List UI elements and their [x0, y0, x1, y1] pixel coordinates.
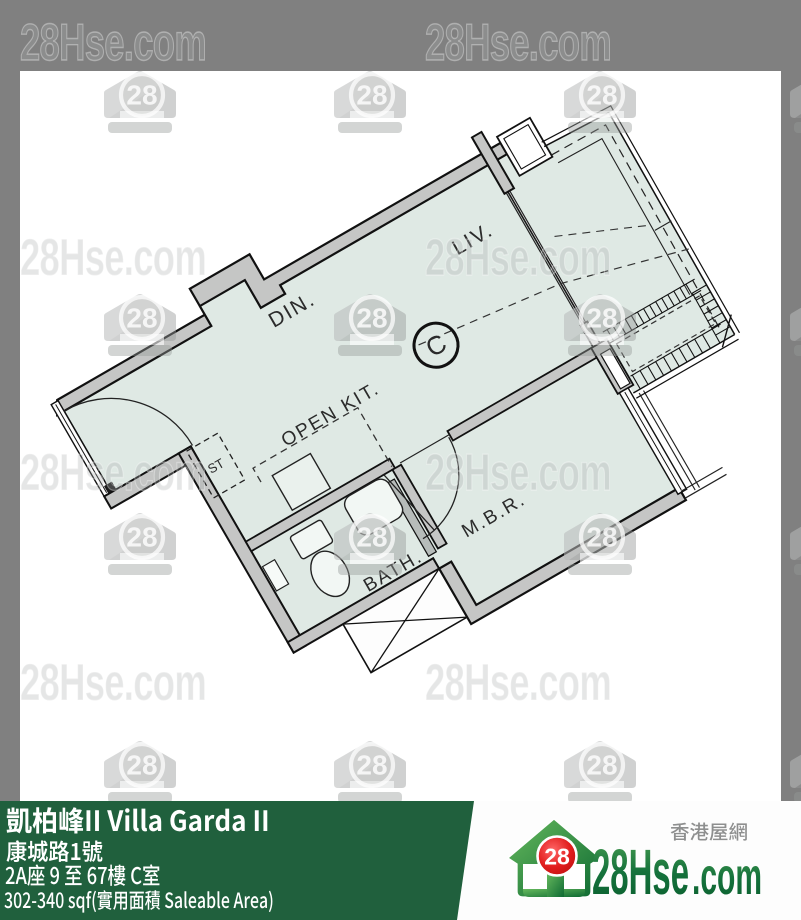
svg-text:28Hse: 28Hse: [592, 836, 689, 908]
svg-text:.com: .com: [692, 848, 762, 906]
svg-text:28: 28: [544, 844, 570, 870]
